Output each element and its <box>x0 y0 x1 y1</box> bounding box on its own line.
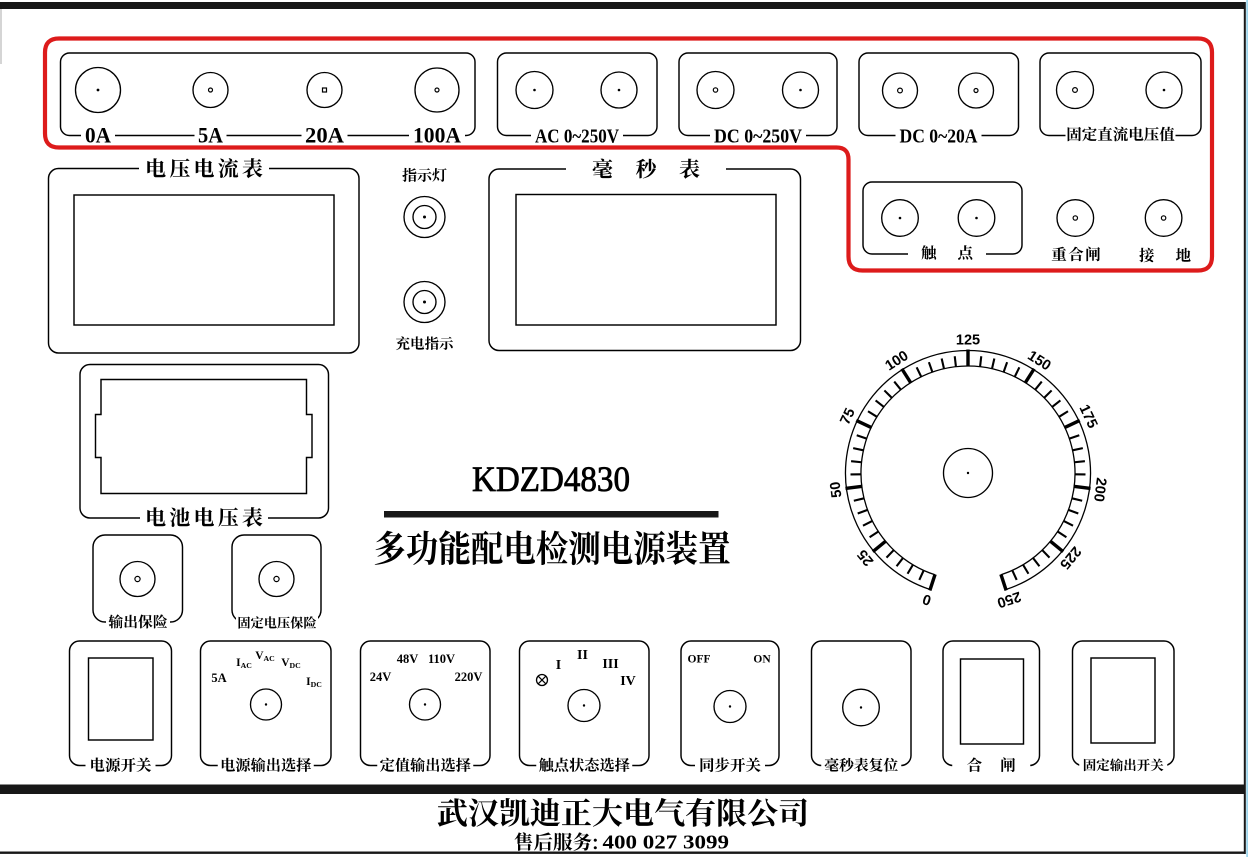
svg-text:220V: 220V <box>455 670 483 684</box>
svg-text:24V: 24V <box>370 670 392 684</box>
svg-text:0A: 0A <box>85 123 111 148</box>
svg-text:DC 0~250V: DC 0~250V <box>714 125 802 147</box>
svg-text:II: II <box>577 648 588 663</box>
svg-text:50: 50 <box>828 481 846 499</box>
svg-text:20A: 20A <box>305 123 344 148</box>
svg-text:400 027 3099: 400 027 3099 <box>603 832 730 854</box>
svg-text:DC 0~20A: DC 0~20A <box>900 125 978 147</box>
svg-text:OFF: OFF <box>688 654 711 666</box>
svg-text:IV: IV <box>620 674 636 689</box>
svg-text:KDZD4830: KDZD4830 <box>472 459 630 499</box>
svg-text:5A: 5A <box>211 671 226 685</box>
svg-text:125: 125 <box>956 333 980 349</box>
svg-text:III: III <box>602 657 618 672</box>
svg-text:5A: 5A <box>198 123 223 148</box>
svg-text:AC 0~250V: AC 0~250V <box>535 125 619 147</box>
svg-text:100A: 100A <box>413 123 461 148</box>
svg-text:ON: ON <box>753 654 771 666</box>
svg-text:I: I <box>556 658 561 673</box>
svg-text:200: 200 <box>1090 477 1109 503</box>
svg-text:110V: 110V <box>428 652 455 666</box>
svg-text:48V: 48V <box>397 652 419 666</box>
